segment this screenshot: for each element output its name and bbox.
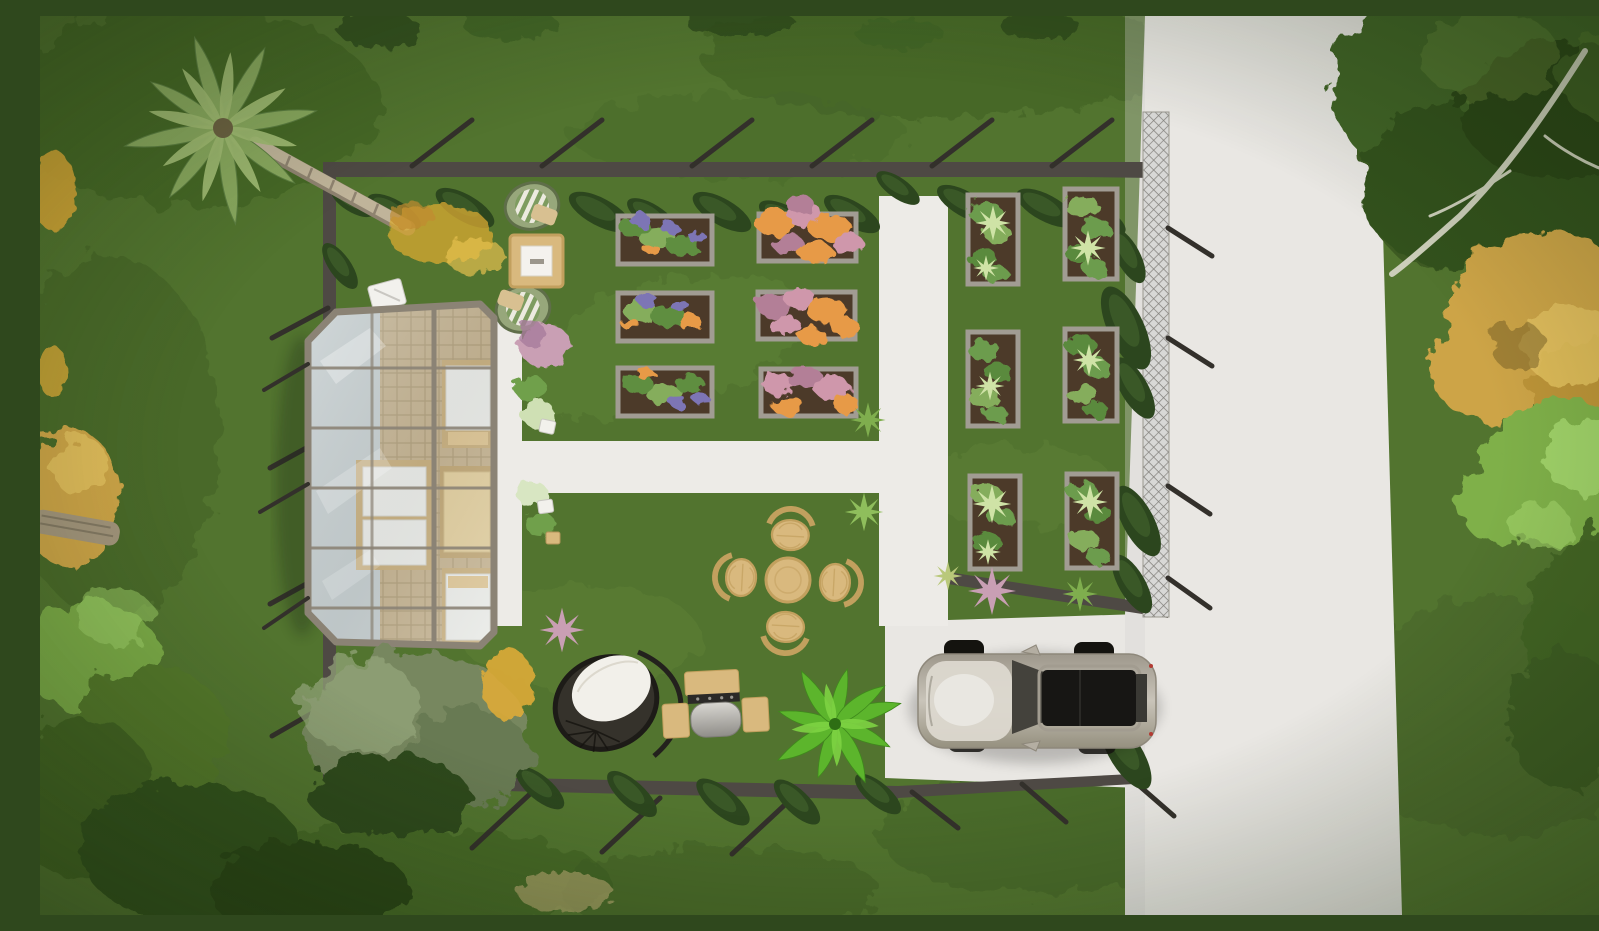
vignette [40,16,1599,915]
scene-canvas [40,16,1599,915]
garden-aerial-render: Aerial top-down 3D rendering of a landsc… [40,16,1599,915]
